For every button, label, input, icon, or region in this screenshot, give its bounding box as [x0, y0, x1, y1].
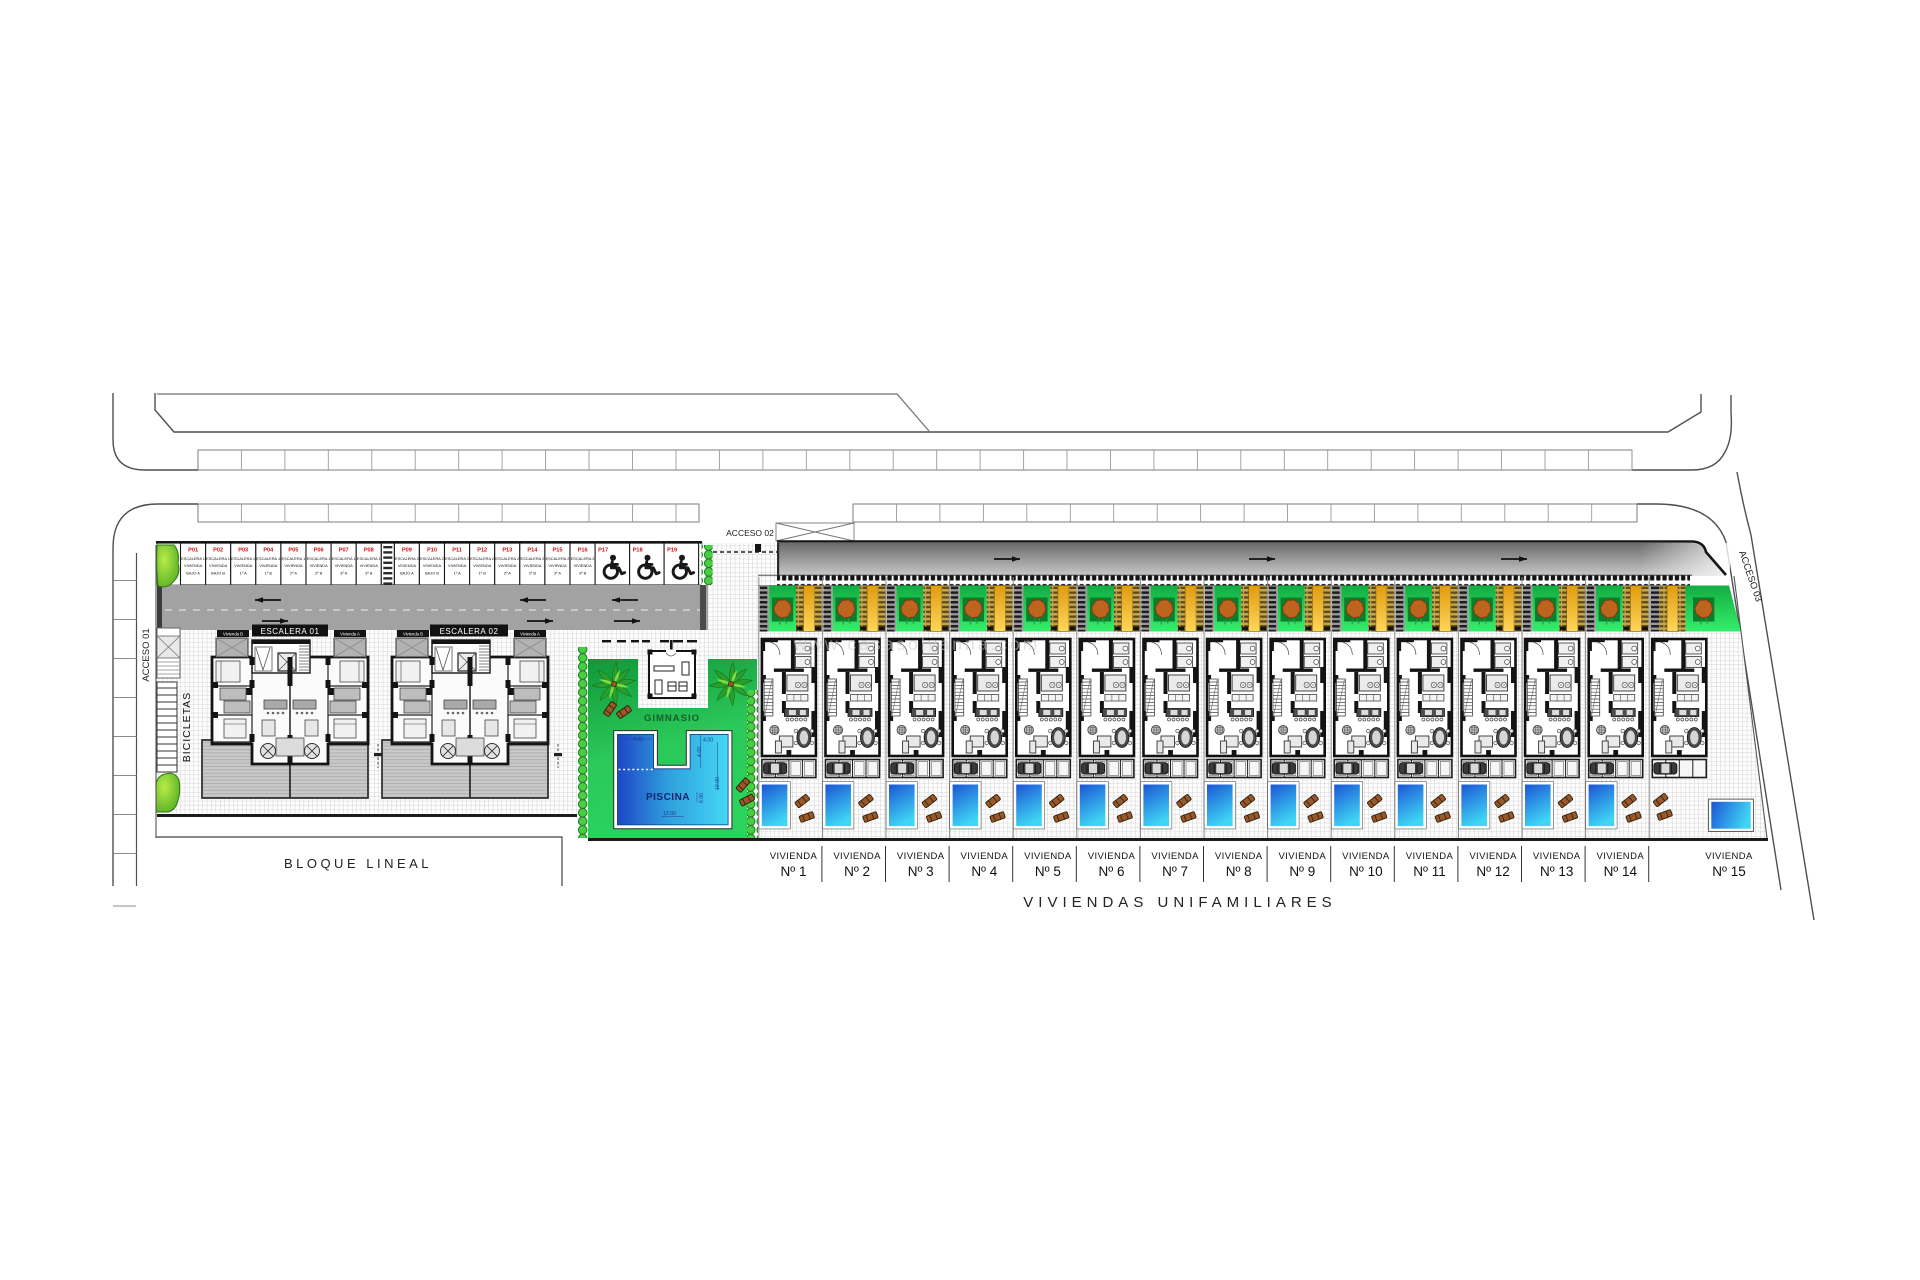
svg-text:2º B: 2º B: [315, 571, 323, 576]
svg-text:PISCINA: PISCINA: [646, 792, 690, 803]
svg-text:Nº 9: Nº 9: [1289, 864, 1315, 879]
svg-text:ESCALERA 1: ESCALERA 1: [282, 556, 306, 561]
svg-text:P04: P04: [263, 548, 274, 554]
svg-text:ESCALERA 2: ESCALERA 2: [395, 556, 419, 561]
svg-text:2º B: 2º B: [529, 571, 537, 576]
svg-text:ESCALERA 2: ESCALERA 2: [571, 556, 595, 561]
svg-text:VIVIENDA: VIVIENDA: [1469, 851, 1517, 862]
svg-text:P01: P01: [188, 548, 198, 554]
svg-text:P06: P06: [314, 548, 324, 554]
svg-text:Nº 6: Nº 6: [1099, 864, 1125, 879]
svg-text:VIVIENDA: VIVIENDA: [1342, 851, 1390, 862]
svg-text:VIVIENDA: VIVIENDA: [284, 563, 303, 568]
svg-text:www.casasolvanna.com: www.casasolvanna.com: [793, 634, 1041, 654]
svg-text:3º B: 3º B: [365, 571, 373, 576]
svg-text:BLOQUE LINEAL: BLOQUE LINEAL: [284, 856, 432, 871]
svg-text:VIVIENDA: VIVIENDA: [335, 563, 354, 568]
svg-text:ESCALERA 1: ESCALERA 1: [332, 556, 356, 561]
svg-text:P13: P13: [502, 548, 512, 554]
svg-text:ESCALERA 2: ESCALERA 2: [546, 556, 570, 561]
svg-text:VIVIENDA: VIVIENDA: [184, 563, 203, 568]
svg-text:VIVIENDA: VIVIENDA: [1279, 851, 1327, 862]
svg-text:1º A: 1º A: [240, 571, 247, 576]
svg-text:Nº 1: Nº 1: [781, 864, 807, 879]
svg-text:BICICLETAS: BICICLETAS: [181, 692, 193, 763]
svg-text:ESCALERA 1: ESCALERA 1: [307, 556, 331, 561]
svg-text:VIVIENDA: VIVIENDA: [1597, 851, 1645, 862]
svg-text:P17: P17: [598, 548, 608, 554]
svg-text:1º B: 1º B: [265, 571, 273, 576]
svg-text:VIVIENDA: VIVIENDA: [473, 563, 492, 568]
svg-text:VIVIENDA: VIVIENDA: [1533, 851, 1581, 862]
svg-text:Nº 15: Nº 15: [1712, 864, 1745, 879]
svg-text:ESCALERA 1: ESCALERA 1: [181, 556, 205, 561]
svg-text:VIVIENDA: VIVIENDA: [833, 851, 881, 862]
svg-text:VIVIENDA: VIVIENDA: [209, 563, 228, 568]
svg-text:ESCALERA 1: ESCALERA 1: [256, 556, 280, 561]
svg-text:Nº 13: Nº 13: [1540, 864, 1573, 879]
svg-text:ESCALERA 2: ESCALERA 2: [495, 556, 519, 561]
svg-text:4.00: 4.00: [697, 747, 703, 757]
svg-text:VIVIENDAS UNIFAMILIARES: VIVIENDAS UNIFAMILIARES: [1023, 894, 1336, 911]
svg-text:P05: P05: [288, 548, 298, 554]
svg-text:ESCALERA 2: ESCALERA 2: [445, 556, 469, 561]
svg-text:Nº 10: Nº 10: [1349, 864, 1382, 879]
svg-text:P18: P18: [633, 548, 643, 554]
svg-text:P09: P09: [402, 548, 412, 554]
svg-text:10.00: 10.00: [715, 777, 721, 790]
svg-text:VIVIENDA: VIVIENDA: [1705, 851, 1753, 862]
svg-text:VIVIENDA: VIVIENDA: [548, 563, 567, 568]
svg-text:ESCALERA 2: ESCALERA 2: [420, 556, 444, 561]
svg-text:VIVIENDA: VIVIENDA: [1151, 851, 1199, 862]
svg-text:3º A: 3º A: [340, 571, 347, 576]
svg-text:P12: P12: [477, 548, 487, 554]
svg-text:4.00: 4.00: [703, 738, 713, 744]
svg-text:Nº 2: Nº 2: [844, 864, 870, 879]
svg-text:ESCALERA 2: ESCALERA 2: [470, 556, 494, 561]
svg-text:Nº 8: Nº 8: [1226, 864, 1252, 879]
svg-text:VIVIENDA: VIVIENDA: [498, 563, 517, 568]
svg-text:P14: P14: [527, 548, 538, 554]
svg-text:ACCESO 01: ACCESO 01: [141, 628, 152, 681]
svg-text:VIVIENDA: VIVIENDA: [448, 563, 467, 568]
svg-text:1º B: 1º B: [479, 571, 487, 576]
svg-text:P10: P10: [427, 548, 437, 554]
svg-text:ESCALERA 01: ESCALERA 01: [261, 627, 320, 636]
svg-text:P08: P08: [364, 548, 374, 554]
svg-text:VIVIENDA: VIVIENDA: [1215, 851, 1263, 862]
svg-text:ESCALERA 1: ESCALERA 1: [206, 556, 230, 561]
svg-text:2º A: 2º A: [504, 571, 511, 576]
svg-text:P16: P16: [578, 548, 588, 554]
svg-text:P15: P15: [553, 548, 563, 554]
svg-text:VIVIENDA: VIVIENDA: [1024, 851, 1072, 862]
svg-text:BAJO B: BAJO B: [425, 571, 439, 576]
svg-text:VIVIENDA: VIVIENDA: [961, 851, 1009, 862]
svg-text:P07: P07: [339, 548, 349, 554]
svg-text:VIVIENDA: VIVIENDA: [897, 851, 945, 862]
svg-text:BAJO A: BAJO A: [186, 571, 200, 576]
svg-text:VIVIENDA: VIVIENDA: [398, 563, 417, 568]
svg-text:GIMNASIO: GIMNASIO: [644, 713, 700, 724]
svg-text:P03: P03: [238, 548, 248, 554]
svg-text:ACCESO 02: ACCESO 02: [726, 528, 774, 538]
svg-text:VIVIENDA: VIVIENDA: [523, 563, 542, 568]
svg-text:Nº 11: Nº 11: [1413, 864, 1445, 879]
svg-text:P11: P11: [452, 548, 462, 554]
svg-text:VIVIENDA: VIVIENDA: [574, 563, 593, 568]
svg-text:VIVIENDA: VIVIENDA: [259, 563, 278, 568]
svg-text:BAJO A: BAJO A: [400, 571, 414, 576]
svg-text:VIVIENDA: VIVIENDA: [310, 563, 329, 568]
svg-text:ESCALERA 02: ESCALERA 02: [440, 627, 499, 636]
svg-text:ESCALERA 1: ESCALERA 1: [231, 556, 255, 561]
svg-text:VIVIENDA: VIVIENDA: [360, 563, 379, 568]
svg-text:BAJO B: BAJO B: [211, 571, 225, 576]
svg-text:VIVIENDA: VIVIENDA: [423, 563, 442, 568]
svg-text:P19: P19: [667, 548, 677, 554]
svg-text:3º B: 3º B: [579, 571, 587, 576]
svg-text:12.00: 12.00: [663, 811, 676, 817]
svg-text:Nº 7: Nº 7: [1162, 864, 1188, 879]
svg-text:ESCALERA 2: ESCALERA 2: [521, 556, 545, 561]
svg-text:Nº 12: Nº 12: [1476, 864, 1509, 879]
svg-text:4.00: 4.00: [633, 737, 643, 743]
svg-text:Nº 4: Nº 4: [971, 864, 997, 879]
svg-text:Nº 5: Nº 5: [1035, 864, 1061, 879]
svg-text:Nº 14: Nº 14: [1604, 864, 1638, 879]
svg-text:VIVIENDA: VIVIENDA: [1088, 851, 1136, 862]
svg-text:VIVIENDA: VIVIENDA: [1406, 851, 1454, 862]
svg-text:Nº 3: Nº 3: [908, 864, 934, 879]
svg-text:3º A: 3º A: [554, 571, 561, 576]
svg-text:ESCALERA 1: ESCALERA 1: [357, 556, 381, 561]
svg-text:VIVIENDA: VIVIENDA: [234, 563, 253, 568]
svg-text:6.00: 6.00: [699, 793, 705, 803]
svg-text:2º A: 2º A: [290, 571, 297, 576]
svg-text:1º A: 1º A: [454, 571, 461, 576]
svg-text:P02: P02: [213, 548, 223, 554]
svg-text:VIVIENDA: VIVIENDA: [770, 851, 818, 862]
